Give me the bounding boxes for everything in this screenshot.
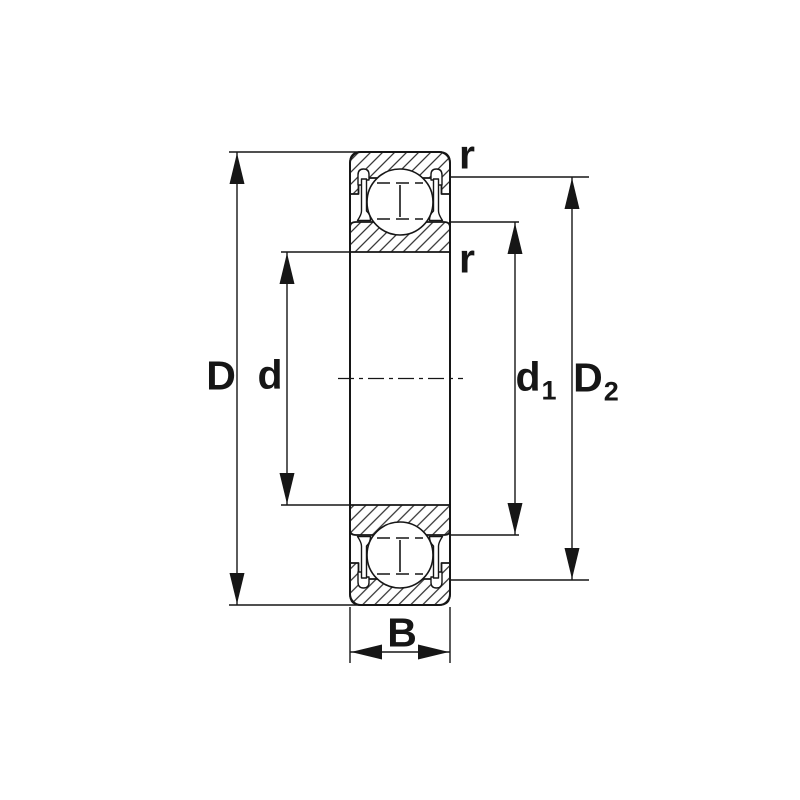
dim-label-recess-main: D bbox=[573, 355, 603, 401]
bearing-drawing bbox=[0, 0, 800, 800]
arrow-left-icon bbox=[351, 645, 382, 660]
dim-label-radius-outer: r bbox=[459, 135, 475, 176]
arrow-up-icon bbox=[565, 178, 580, 209]
dim-label-shoulder-sub: 1 bbox=[542, 378, 557, 405]
bearing-diagram-canvas: D d d1 D2 r r B bbox=[0, 0, 800, 800]
arrow-down-icon bbox=[565, 548, 580, 579]
dim-label-shoulder-main: d bbox=[515, 354, 540, 400]
arrow-up-icon bbox=[280, 253, 295, 284]
dim-label-shoulder-diameter: d1 bbox=[515, 357, 556, 398]
dim-label-recess-diameter: D2 bbox=[573, 358, 619, 399]
arrow-up-icon bbox=[230, 153, 245, 184]
dim-label-width: B bbox=[387, 613, 417, 654]
dim-label-outer-diameter: D bbox=[206, 356, 236, 397]
arrow-down-icon bbox=[280, 473, 295, 504]
dim-label-bore-diameter: d bbox=[257, 355, 282, 396]
arrow-right-icon bbox=[418, 645, 449, 660]
arrow-down-icon bbox=[508, 503, 523, 534]
arrow-down-icon bbox=[230, 573, 245, 604]
dim-label-recess-sub: 2 bbox=[604, 379, 619, 406]
dim-label-radius-inner: r bbox=[459, 239, 475, 280]
arrow-up-icon bbox=[508, 223, 523, 254]
